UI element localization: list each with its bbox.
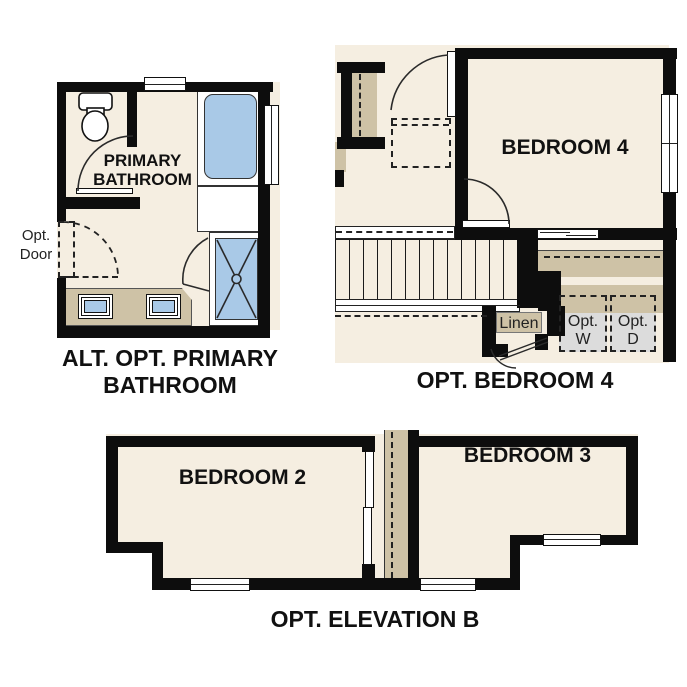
room-label: BEDROOM 4 xyxy=(470,136,660,160)
chase-dashed xyxy=(391,432,393,578)
wall xyxy=(362,436,375,452)
bedroom4-label-text: BEDROOM 4 xyxy=(501,136,628,159)
tub-fixture xyxy=(204,94,257,179)
room-label-line: PRIMARY xyxy=(85,151,200,170)
opt-door-leaf xyxy=(63,276,118,278)
washer-label-line: Opt. xyxy=(559,313,607,331)
closet-shelf xyxy=(352,73,377,137)
opt-door-label-line: Opt. xyxy=(12,226,60,245)
opt-door-jamb xyxy=(58,221,75,278)
shower-fixture xyxy=(215,238,258,320)
window xyxy=(420,578,476,591)
wall xyxy=(106,436,364,447)
washer-label: Opt. W xyxy=(559,313,607,349)
dryer-label-line: Opt. xyxy=(610,313,656,331)
wall xyxy=(127,92,137,147)
window xyxy=(365,451,374,508)
room-label: BEDROOM 2 xyxy=(165,466,320,490)
caption-line: BATHROOM xyxy=(25,372,315,399)
window xyxy=(363,507,372,565)
tub-deck xyxy=(197,186,263,232)
dryer-label-line: D xyxy=(610,331,656,349)
opening-header-dashed xyxy=(391,124,449,126)
caption-text: OPT. ELEVATION B xyxy=(271,606,480,632)
wall xyxy=(57,326,270,338)
wall xyxy=(106,436,118,553)
stairs xyxy=(335,239,517,300)
chase-strip xyxy=(384,430,408,578)
bedroom4-caption: OPT. BEDROOM 4 xyxy=(380,367,650,394)
window xyxy=(543,534,601,546)
room-label: PRIMARY BATHROOM xyxy=(85,151,200,189)
window xyxy=(144,77,186,91)
linen-label: Linen xyxy=(496,312,542,333)
washer-label-line: W xyxy=(559,331,607,349)
stair-railing-line xyxy=(335,305,520,306)
bathroom-caption: ALT. OPT. PRIMARY BATHROOM xyxy=(25,345,315,399)
wall xyxy=(57,197,140,209)
opt-door-label: Opt. Door xyxy=(12,226,60,264)
room-label-line: BATHROOM xyxy=(85,170,200,189)
opt-door-label-line: Door xyxy=(12,245,60,264)
window xyxy=(264,105,279,185)
dryer-label: Opt. D xyxy=(610,313,656,349)
window xyxy=(190,578,250,591)
sink-fixture xyxy=(78,294,113,319)
wall xyxy=(455,48,677,59)
caption-line: ALT. OPT. PRIMARY xyxy=(25,345,315,372)
wall xyxy=(362,564,375,579)
wall xyxy=(335,170,344,187)
bypass-door xyxy=(537,229,599,239)
wall xyxy=(408,430,419,590)
room-label: BEDROOM 3 xyxy=(450,444,605,468)
wall xyxy=(626,436,638,545)
door-leaf xyxy=(447,51,456,117)
sink-fixture xyxy=(146,294,181,319)
wall xyxy=(341,62,352,142)
bedroom3-label-text: BEDROOM 3 xyxy=(464,444,591,467)
wall xyxy=(337,137,385,149)
floor-cutout xyxy=(520,545,638,590)
bedroom2-label-text: BEDROOM 2 xyxy=(179,466,306,489)
stair-railing-dashed xyxy=(336,231,453,233)
door-leaf xyxy=(462,220,510,228)
linen-label-text: Linen xyxy=(499,315,538,332)
shelf-dashed xyxy=(544,256,660,258)
wall xyxy=(535,334,548,350)
floor-cutout xyxy=(106,553,152,590)
wall xyxy=(482,344,508,357)
wall xyxy=(538,271,561,311)
closet-rod-dashed xyxy=(359,74,361,136)
wall xyxy=(455,48,468,240)
window xyxy=(661,94,678,193)
elevation-caption: OPT. ELEVATION B xyxy=(240,606,510,633)
floor-plan-sheet: PRIMARY BATHROOM Opt. Door ALT. OPT. PRI… xyxy=(0,0,687,687)
caption-text: OPT. BEDROOM 4 xyxy=(417,367,614,393)
wall xyxy=(517,228,538,308)
stair-dashed xyxy=(335,315,487,317)
